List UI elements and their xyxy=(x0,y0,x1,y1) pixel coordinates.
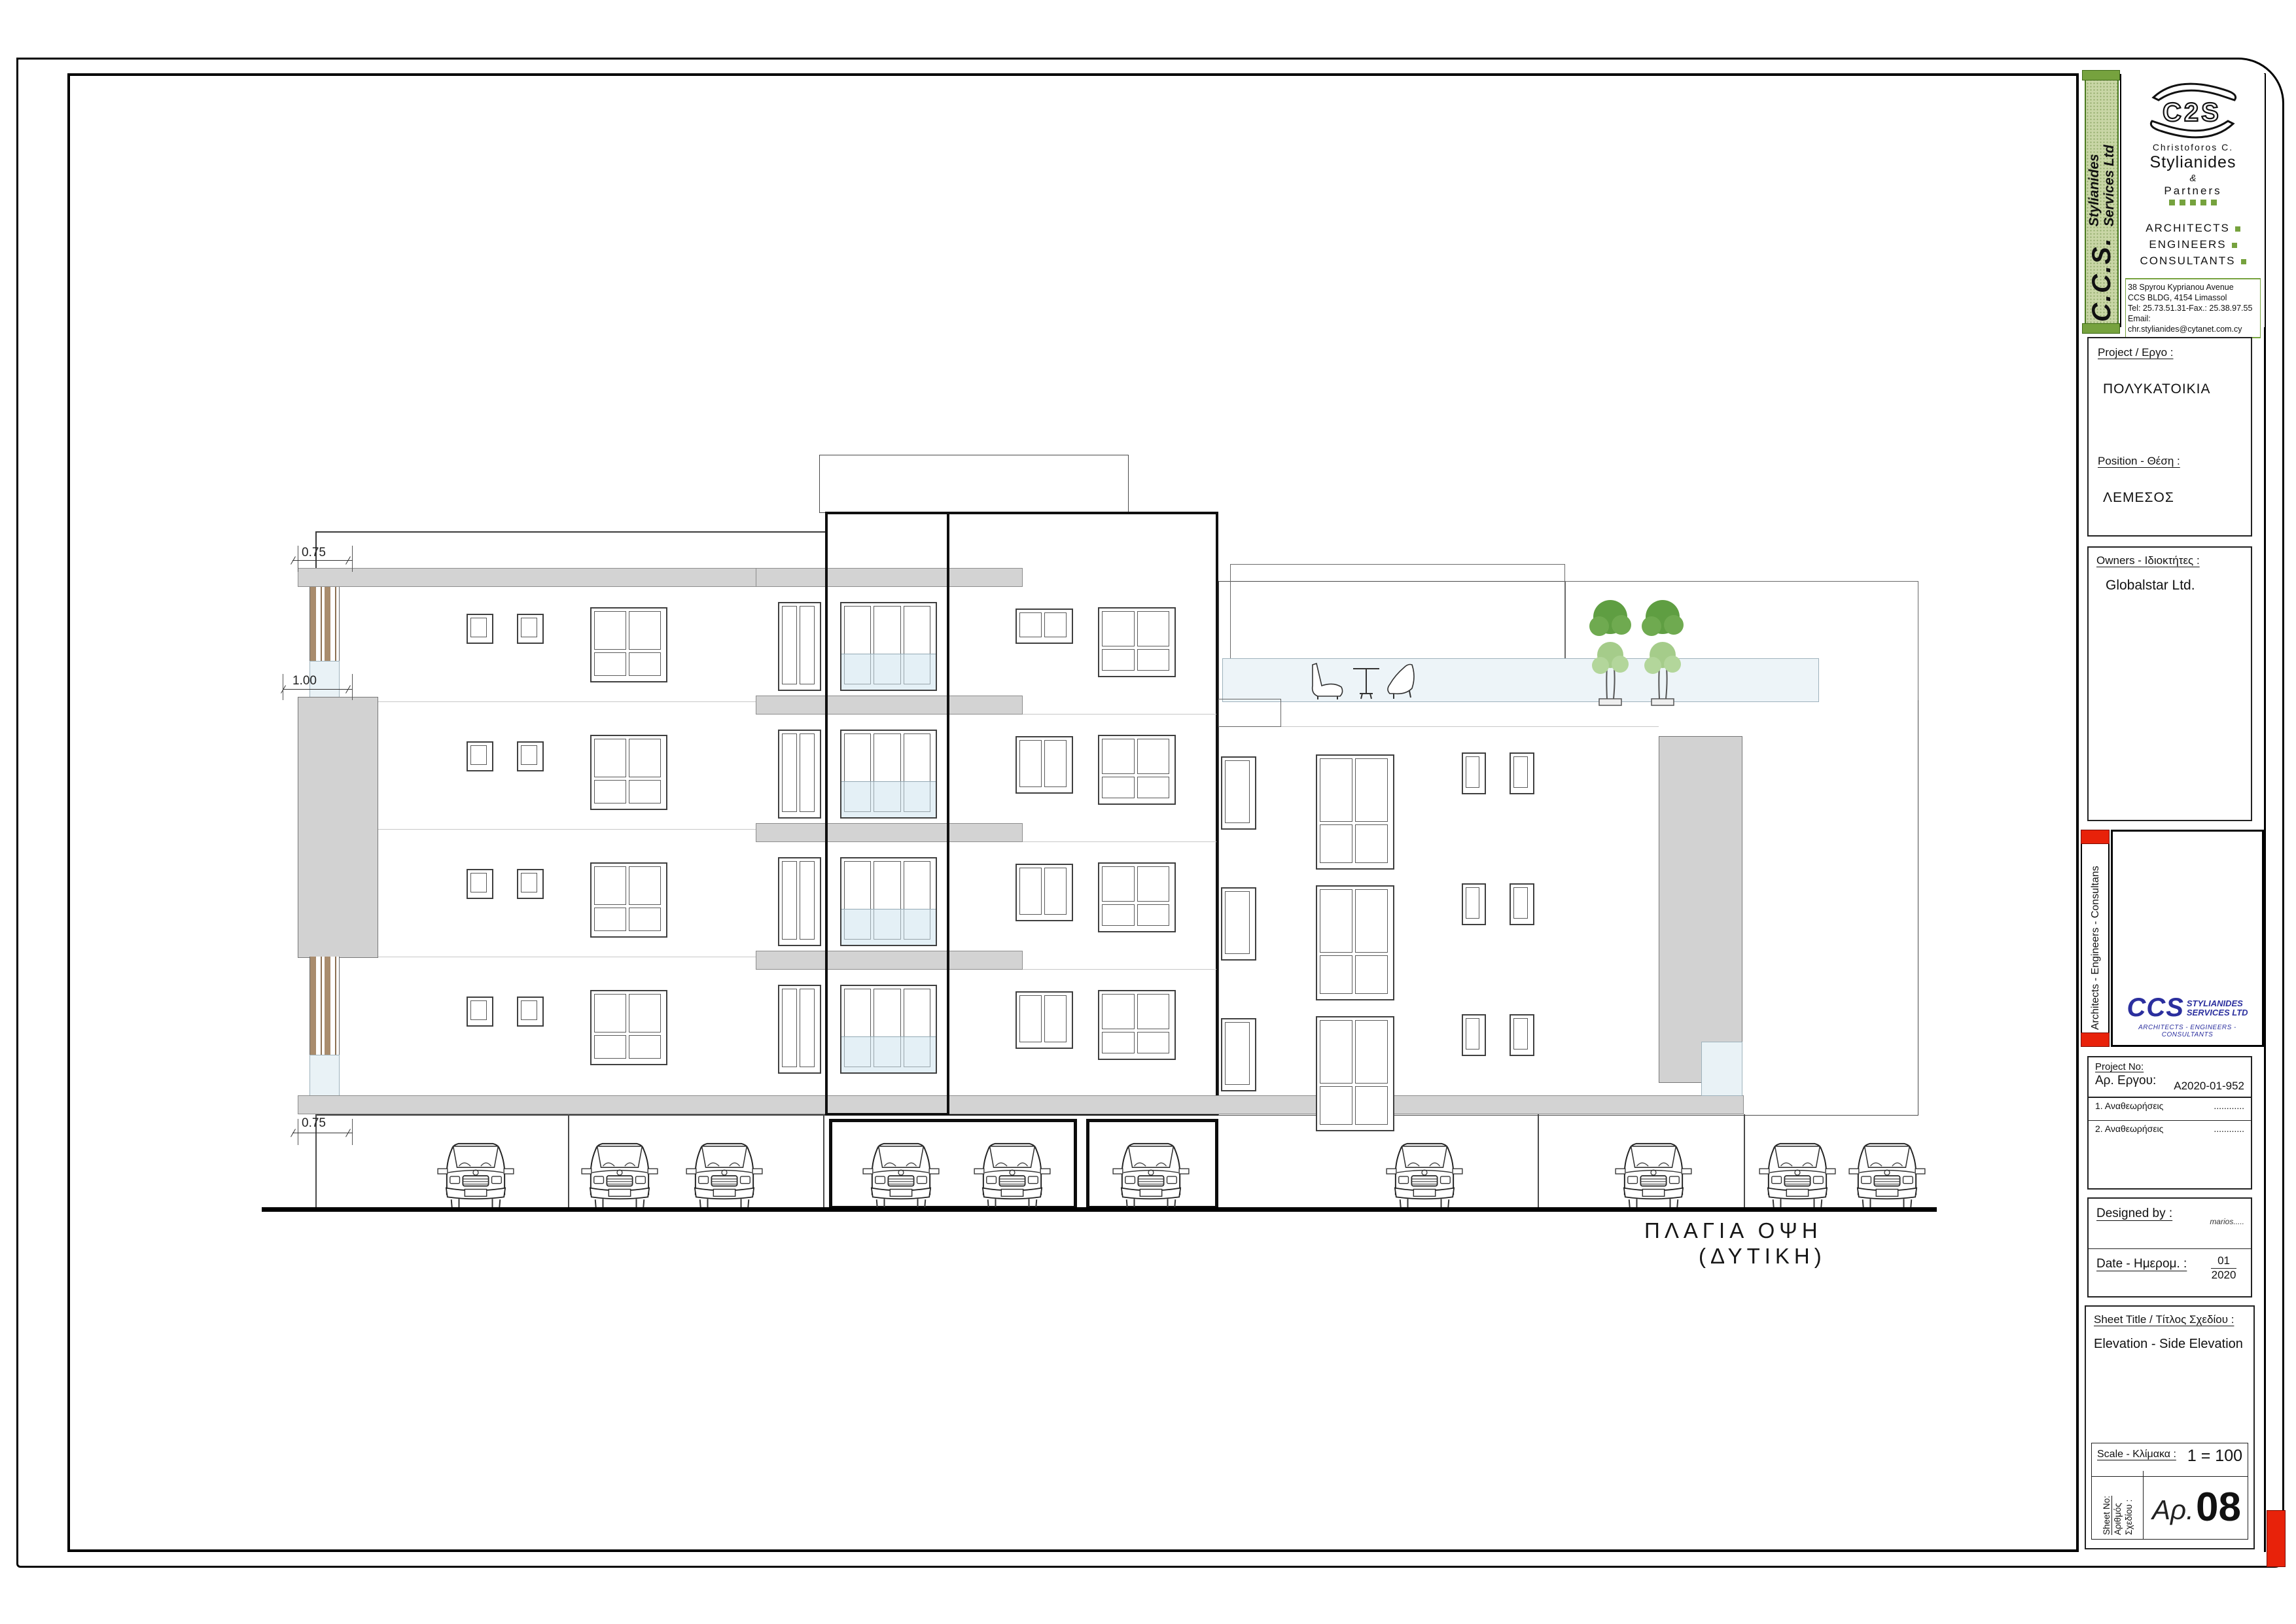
central-small-f0 xyxy=(1016,609,1073,644)
left-sq-b-f2 xyxy=(517,869,544,899)
window-pane xyxy=(800,606,815,684)
window-pane xyxy=(521,618,537,637)
park-column-3 xyxy=(823,1114,824,1207)
window-pane xyxy=(1102,649,1135,671)
car-icon xyxy=(862,1140,940,1209)
designed-box: Designed by : marios..... Date - Ημερομ.… xyxy=(2087,1197,2252,1297)
scale-box: Scale - Κλίμακα : 1 = 100 Sheet No: Αριθ… xyxy=(2091,1443,2248,1540)
sheet-no-label-gr2: Σχεδίου : xyxy=(2124,1500,2134,1535)
ccs-logo-line2: SERVICES LTD xyxy=(2187,1008,2248,1017)
window-pane xyxy=(1137,904,1170,926)
window-pane xyxy=(1102,611,1135,646)
car-icon xyxy=(1848,1140,1926,1209)
central-cross-f2 xyxy=(1098,862,1176,932)
window-pane xyxy=(521,745,537,765)
window-pane xyxy=(1225,1022,1250,1085)
svg-text:C2S: C2S xyxy=(2163,98,2221,127)
project-no-label: Project No: xyxy=(2095,1061,2244,1072)
dim-ext-6 xyxy=(352,1119,353,1145)
sheet-no-label-gr1: Αριθμός xyxy=(2113,1503,2123,1535)
view-title-line2: (ΔΥΤΙΚΗ) xyxy=(1699,1244,1826,1269)
car-icon xyxy=(974,1140,1051,1209)
left-sq-b-f0 xyxy=(517,614,544,644)
penthouse-outline xyxy=(819,455,1129,513)
balustrade-glass xyxy=(841,1036,936,1072)
left-sq-a-f3 xyxy=(467,997,493,1027)
right-door-f0 xyxy=(1221,756,1256,830)
window-pane xyxy=(1102,904,1135,926)
park-column-5 xyxy=(1744,1114,1745,1207)
parked-car-10 xyxy=(1848,1140,1926,1209)
window-pane xyxy=(1044,995,1067,1042)
terrace-tree-2 xyxy=(1634,592,1691,707)
window-pane xyxy=(1466,756,1479,788)
sheet-no-value: 08 xyxy=(2196,1484,2241,1530)
scale-label: Scale - Κλίμακα : xyxy=(2097,1449,2176,1460)
window-pane xyxy=(1019,868,1042,915)
sheet-no-prefix: Αρ. xyxy=(2152,1494,2194,1526)
ccs-logo-sub: ARCHITECTS - ENGINEERS - CONSULTANTS xyxy=(2113,1024,2262,1038)
window-pane xyxy=(782,989,797,1067)
left-cross-f1 xyxy=(590,735,667,810)
window-pane xyxy=(594,780,626,803)
window-pane xyxy=(629,611,661,650)
left-floor-line-1 xyxy=(317,701,824,702)
position-label: Position - Θέση : xyxy=(2098,455,2242,468)
tower-balcony-f1 xyxy=(840,730,937,819)
right-sq-a-f1 xyxy=(1462,883,1486,925)
window-pane xyxy=(782,606,797,684)
window-pane xyxy=(1044,740,1067,787)
parked-car-6 xyxy=(1112,1140,1190,1209)
window-pane xyxy=(1320,758,1352,822)
window-pane xyxy=(1355,1086,1388,1125)
window-pane xyxy=(1513,756,1528,788)
window-pane xyxy=(629,780,661,803)
date-value: 01 2020 xyxy=(2211,1254,2236,1282)
company-band-line1: Stylianides xyxy=(2087,154,2102,226)
address-line2: CCS BLDG, 4154 Limassol xyxy=(2128,292,2258,303)
parked-car-4 xyxy=(862,1140,940,1209)
position-name: ΛΕΜΕΣΟΣ xyxy=(2103,490,2242,506)
right-sq-a-f0 xyxy=(1462,752,1486,794)
terrace-wall-line xyxy=(1218,726,1659,727)
window-pane xyxy=(629,1035,661,1059)
window-pane xyxy=(470,1000,487,1020)
terrace-parapet xyxy=(1218,699,1281,727)
central-cross-f1 xyxy=(1098,735,1176,805)
project-no-box: Project No: Αρ. Εργου: A2020-01-952 1. Α… xyxy=(2087,1056,2252,1190)
left-cross-f2 xyxy=(590,862,667,938)
window-pane xyxy=(629,652,661,676)
terrace-tree-1 xyxy=(1582,592,1638,707)
car-icon xyxy=(1112,1140,1190,1209)
left-floor-line-3 xyxy=(317,957,824,957)
left-sq-a-f2 xyxy=(467,869,493,899)
right-sq-a-f2 xyxy=(1462,1014,1486,1056)
dim-bottom-line xyxy=(292,1133,353,1133)
dim-top-line xyxy=(292,560,353,561)
right-cross-f0 xyxy=(1316,754,1394,870)
central-small-f1 xyxy=(1016,736,1073,794)
central-cross-f0 xyxy=(1098,607,1176,677)
designed-by-value: marios..... xyxy=(2210,1217,2244,1226)
owners-box: Owners - Ιδιοκτήτες : Globalstar Ltd. xyxy=(2087,546,2252,821)
window-pane xyxy=(1355,758,1388,822)
ccs-logo-line1: STYLIANIDES xyxy=(2187,998,2243,1008)
terrace-furniture-icon xyxy=(1307,660,1419,701)
pergola-upper xyxy=(309,586,340,661)
window-pane xyxy=(1137,1032,1170,1053)
window-pane xyxy=(1137,777,1170,798)
company-logo-box: C2S Christoforos C. Stylianides & Partne… xyxy=(2120,74,2265,327)
project-name: ΠΟΛΥΚΑΤΟΙΚΙΑ xyxy=(2103,381,2242,397)
window-pane xyxy=(1513,887,1528,919)
window-pane xyxy=(1466,887,1479,919)
principal-small: Christoforos C. xyxy=(2121,142,2265,152)
green-squares xyxy=(2121,200,2265,205)
window-pane xyxy=(1102,994,1135,1029)
dim-mid: 1.00 xyxy=(292,674,317,688)
tree-icon xyxy=(1582,592,1638,707)
tower-balcony-f0 xyxy=(840,602,937,691)
park-column-2 xyxy=(568,1114,569,1207)
right-sq-b-f2 xyxy=(1510,1014,1534,1056)
right-door-f2 xyxy=(1221,1018,1256,1091)
right-glass-piece xyxy=(1701,1042,1742,1096)
window-pane xyxy=(470,745,487,765)
company-address: 38 Spyrou Kyprianou Avenue CCS BLDG, 415… xyxy=(2125,278,2261,338)
window-pane xyxy=(800,861,815,940)
central-small-f3 xyxy=(1016,991,1073,1049)
designed-by-row: Designed by : marios..... xyxy=(2089,1199,2251,1249)
role-architects: ARCHITECTS xyxy=(2121,220,2265,236)
window-pane xyxy=(1355,955,1388,994)
window-pane xyxy=(1320,1086,1352,1125)
date-label: Date - Ημερομ. : xyxy=(2096,1257,2187,1271)
window-pane xyxy=(782,861,797,940)
car-icon xyxy=(1759,1140,1836,1209)
date-row: Date - Ημερομ. : 01 2020 xyxy=(2089,1249,2251,1303)
company-ccs: C.C.S. xyxy=(2087,237,2117,322)
window-pane xyxy=(800,733,815,812)
window-pane xyxy=(1137,611,1170,646)
right-sq-b-f1 xyxy=(1510,883,1534,925)
dim-ext-1 xyxy=(298,546,298,572)
left-tall-f1 xyxy=(778,730,821,819)
left-tall-f0 xyxy=(778,602,821,691)
park-column-4 xyxy=(1538,1114,1539,1207)
window-pane xyxy=(1137,649,1170,671)
car-icon xyxy=(581,1140,658,1209)
window-pane xyxy=(1019,740,1042,787)
window-pane xyxy=(1320,889,1352,953)
left-facade-block xyxy=(315,531,826,1116)
red-corner-mark xyxy=(2267,1510,2286,1567)
firm-logo-box: CCS STYLIANIDES SERVICES LTD ARCHITECTS … xyxy=(2111,830,2264,1047)
dim-top: 0.75 xyxy=(302,546,326,560)
window-pane xyxy=(1137,866,1170,902)
sheet-no-labels: Sheet No: Αριθμός Σχεδίου : xyxy=(2101,1470,2140,1535)
parked-car-5 xyxy=(974,1140,1051,1209)
window-pane xyxy=(629,994,661,1033)
dim-ext-2 xyxy=(352,546,353,572)
left-sq-b-f1 xyxy=(517,741,544,771)
pergola-glass-lower xyxy=(309,1055,340,1097)
principal-amp: & xyxy=(2121,173,2265,184)
side-strip-cap-bottom xyxy=(2081,1033,2110,1047)
owners-name: Globalstar Ltd. xyxy=(2106,578,2243,593)
parked-car-3 xyxy=(686,1140,763,1209)
window-pane xyxy=(629,908,661,931)
window-pane xyxy=(1225,760,1250,823)
company-band-line2: Services Ltd xyxy=(2102,145,2117,226)
car-icon xyxy=(1386,1140,1463,1209)
dim-bottom: 0.75 xyxy=(302,1116,326,1131)
window-pane xyxy=(470,873,487,892)
pergola-lower xyxy=(309,957,340,1056)
right-cross-f1 xyxy=(1316,885,1394,1000)
parked-car-2 xyxy=(581,1140,658,1209)
left-wall-block xyxy=(298,697,378,958)
principal-partners: Partners xyxy=(2121,185,2265,198)
address-line3: Tel: 25.73.51.31-Fax.: 25.38.97.55 xyxy=(2128,303,2258,313)
window-pane xyxy=(1320,1020,1352,1084)
left-floor-line-2 xyxy=(317,829,824,830)
sheet-title-value: Elevation - Side Elevation xyxy=(2094,1337,2246,1352)
elevation-drawing xyxy=(0,0,2296,1624)
side-strip-cap-top xyxy=(2081,830,2110,844)
designed-by-label: Designed by : xyxy=(2096,1207,2172,1220)
ccs-logo-text: CCS xyxy=(2127,993,2183,1023)
car-icon xyxy=(1615,1140,1692,1209)
project-box: Project / Εργο : ΠΟΛΥΚΑΤΟΙΚΙΑ Position -… xyxy=(2087,337,2252,537)
left-tall-f3 xyxy=(778,985,821,1074)
window-pane xyxy=(594,739,626,777)
sheet-no-label-en: Sheet No: xyxy=(2102,1496,2111,1535)
address-line4: Email: chr.stylianides@cytanet.com.cy xyxy=(2128,313,2258,334)
left-cross-f3 xyxy=(590,990,667,1065)
window-pane xyxy=(1102,866,1135,902)
owners-label: Owners - Ιδιοκτήτες : xyxy=(2096,554,2243,567)
balustrade-glass xyxy=(841,654,936,690)
parked-car-7 xyxy=(1386,1140,1463,1209)
left-sq-a-f0 xyxy=(467,614,493,644)
side-strip-text: Architects - Engineers - Consultans xyxy=(2085,847,2107,1030)
parked-car-8 xyxy=(1615,1140,1692,1209)
role-consultants: CONSULTANTS xyxy=(2121,253,2265,269)
balustrade-glass xyxy=(841,909,936,945)
parked-car-1 xyxy=(437,1140,514,1209)
right-cross-f2 xyxy=(1316,1016,1394,1131)
principal-big: Stylianides xyxy=(2121,153,2265,172)
window-pane xyxy=(594,1035,626,1059)
window-pane xyxy=(1044,612,1067,637)
scale-value: 1 = 100 xyxy=(2187,1447,2242,1466)
right-wall-slab xyxy=(1659,736,1742,1083)
revision-row-2: 2. Αναθεωρήσεις............ xyxy=(2089,1121,2251,1143)
window-pane xyxy=(594,994,626,1033)
window-pane xyxy=(800,989,815,1067)
window-pane xyxy=(629,866,661,905)
c2s-logo-icon: C2S xyxy=(2144,80,2242,141)
window-pane xyxy=(594,652,626,676)
window-pane xyxy=(594,611,626,650)
date-year: 2020 xyxy=(2211,1269,2236,1282)
dim-mid-line xyxy=(283,689,352,690)
left-sq-b-f3 xyxy=(517,997,544,1027)
ccs-firm-logo: CCS STYLIANIDES SERVICES LTD ARCHITECTS … xyxy=(2113,993,2262,1038)
window-pane xyxy=(1137,739,1170,774)
dim-ext-5 xyxy=(298,1119,298,1145)
parked-car-9 xyxy=(1759,1140,1836,1209)
date-month: 01 xyxy=(2211,1254,2236,1269)
dim-ext-3 xyxy=(283,674,283,700)
central-cross-f3 xyxy=(1098,990,1176,1060)
window-pane xyxy=(594,866,626,905)
revision-row-1: 1. Αναθεωρήσεις............ xyxy=(2089,1098,2251,1121)
car-icon xyxy=(686,1140,763,1209)
tower-balcony-f3 xyxy=(840,985,937,1074)
right-door-f1 xyxy=(1221,887,1256,961)
left-sq-a-f1 xyxy=(467,741,493,771)
window-pane xyxy=(1355,824,1388,863)
window-pane xyxy=(1137,994,1170,1029)
window-pane xyxy=(1102,777,1135,798)
window-pane xyxy=(782,733,797,812)
window-pane xyxy=(521,873,537,892)
window-pane xyxy=(1355,889,1388,953)
project-label: Project / Εργο : xyxy=(2098,346,2242,359)
dim-ext-4 xyxy=(352,674,353,700)
window-pane xyxy=(521,1000,537,1020)
window-pane xyxy=(1102,739,1135,774)
bottom-slab xyxy=(298,1095,1744,1114)
project-no-value: A2020-01-952 xyxy=(2174,1080,2244,1093)
window-pane xyxy=(1019,612,1042,637)
left-cross-f0 xyxy=(590,607,667,682)
window-pane xyxy=(594,908,626,931)
central-small-f2 xyxy=(1016,864,1073,921)
window-pane xyxy=(1225,891,1250,954)
window-pane xyxy=(470,618,487,637)
role-engineers: ENGINEERS xyxy=(2121,236,2265,253)
terrace-furniture xyxy=(1307,660,1419,701)
window-pane xyxy=(1102,1032,1135,1053)
left-tall-f2 xyxy=(778,857,821,946)
view-title-line1: ΠΛΑΓΙΑ ΟΨΗ xyxy=(1644,1218,1822,1243)
right-sq-b-f0 xyxy=(1510,752,1534,794)
company-band-text: C.C.S. Stylianides Services Ltd xyxy=(2086,75,2117,326)
sheet-title-label: Sheet Title / Τίτλος Σχεδίου : xyxy=(2094,1313,2246,1326)
window-pane xyxy=(1320,955,1352,994)
window-pane xyxy=(629,739,661,777)
address-line1: 38 Spyrou Kyprianou Avenue xyxy=(2128,282,2258,292)
tower-balcony-f2 xyxy=(840,857,937,946)
car-icon xyxy=(437,1140,514,1209)
window-pane xyxy=(1466,1018,1479,1050)
window-pane xyxy=(1320,824,1352,863)
balustrade-glass xyxy=(841,781,936,817)
window-pane xyxy=(1019,995,1042,1042)
window-pane xyxy=(1513,1018,1528,1050)
window-pane xyxy=(1044,868,1067,915)
tree-icon xyxy=(1634,592,1691,707)
project-no-row: Project No: Αρ. Εργου: A2020-01-952 xyxy=(2089,1057,2251,1098)
window-pane xyxy=(1355,1020,1388,1084)
